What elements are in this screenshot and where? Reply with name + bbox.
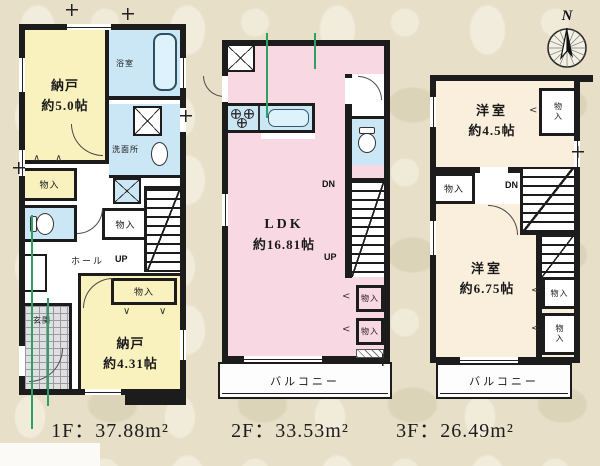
washbasin-icon bbox=[151, 142, 168, 166]
stairs-down-label: DN bbox=[505, 180, 518, 190]
wall-segment bbox=[578, 75, 593, 82]
closet: 物入 bbox=[25, 168, 77, 201]
folding-door-icon: ∧ bbox=[55, 153, 62, 164]
balcony-3f: バルコニー bbox=[436, 363, 572, 399]
floor-plan-3f: 洋室 約4.5帖 物入 < 物入 DN 洋室 約6.75帖 物入 物入 < < bbox=[430, 75, 580, 363]
washer-pan-icon bbox=[133, 106, 162, 136]
burner-icon bbox=[237, 118, 247, 128]
closet: 物入 bbox=[539, 88, 574, 136]
balcony-label: バルコニー bbox=[270, 373, 340, 389]
closet: 物入 bbox=[102, 208, 149, 240]
stair-hall bbox=[352, 74, 384, 116]
door-leaf-icon: < bbox=[529, 105, 537, 116]
entrance-door-opening bbox=[19, 346, 25, 376]
room-name: 納戸 bbox=[81, 334, 180, 354]
room-name: 納戸 bbox=[25, 76, 105, 96]
closet-label: 物入 bbox=[554, 324, 565, 344]
bathtub-icon bbox=[153, 33, 177, 91]
scan-artifact bbox=[0, 443, 100, 466]
washing-machine-pan-icon bbox=[113, 178, 141, 204]
closet-label: 物入 bbox=[39, 178, 59, 191]
window bbox=[430, 221, 436, 255]
closet-label: 物入 bbox=[134, 285, 154, 298]
staircase-1f bbox=[144, 186, 180, 272]
closet-label: 物入 bbox=[553, 102, 564, 122]
staircase-3f bbox=[520, 167, 574, 235]
compass-rose-icon bbox=[544, 25, 590, 71]
window bbox=[85, 389, 121, 395]
door-swing-icon bbox=[29, 348, 63, 382]
kitchen-sink-icon bbox=[268, 109, 309, 127]
closet: 物入 bbox=[111, 278, 177, 305]
floor-plan-2f: DN UP 物入 物入 < < LDK 約16.81帖 bbox=[222, 40, 390, 362]
room-name: 洋室 bbox=[438, 259, 536, 279]
room-bathroom: 浴室 bbox=[109, 30, 180, 100]
stairs-down-label: DN bbox=[322, 179, 335, 189]
survey-line bbox=[31, 215, 33, 429]
room-name: 洋室 bbox=[442, 101, 542, 121]
closet-label: 物入 bbox=[115, 218, 135, 231]
floor-plan-1f: 納戸 約5.0帖 浴室 洗面所 物入 ∧ ∧ 物入 ホール UP bbox=[19, 24, 186, 395]
staircase-2f bbox=[352, 178, 384, 277]
survey-line bbox=[266, 33, 268, 118]
closet: 物入 bbox=[542, 277, 574, 309]
door-opening bbox=[480, 167, 508, 173]
hall-label: ホール bbox=[71, 254, 104, 267]
room-label: 納戸 約5.0帖 bbox=[25, 76, 105, 115]
closet-label: 物入 bbox=[361, 293, 379, 304]
folding-door-icon: ∨ bbox=[159, 306, 166, 317]
window bbox=[180, 58, 186, 88]
room-size: 約16.81帖 bbox=[228, 235, 340, 255]
wall-segment bbox=[345, 74, 352, 278]
stairs-up-label: UP bbox=[115, 254, 128, 264]
compass-north-label: N bbox=[541, 8, 593, 25]
room-name: LDK bbox=[228, 214, 340, 235]
counter-edge bbox=[261, 133, 315, 139]
door-swing-icon bbox=[488, 205, 518, 235]
kitchen-counter bbox=[228, 103, 315, 133]
room-size: 約5.0帖 bbox=[25, 96, 105, 116]
survey-line bbox=[314, 33, 316, 69]
room-size: 約4.5帖 bbox=[442, 121, 542, 141]
floorplan-image: N 納戸 約5.0帖 浴室 洗面所 bbox=[0, 0, 600, 466]
stove-icon bbox=[228, 106, 260, 130]
room-storage-5jo: 納戸 約5.0帖 bbox=[25, 30, 109, 164]
compass: N bbox=[541, 8, 593, 76]
room-washroom: 洗面所 bbox=[109, 104, 180, 178]
window bbox=[67, 24, 111, 30]
toilet-icon bbox=[30, 212, 58, 238]
door-leaf-icon: < bbox=[342, 291, 350, 302]
door-swing-icon bbox=[358, 76, 382, 100]
balcony-window bbox=[460, 357, 518, 363]
room-label: LDK 約16.81帖 bbox=[228, 214, 340, 255]
refrigerator-space-icon bbox=[228, 46, 255, 72]
closet: 物入 bbox=[356, 285, 384, 312]
closet-label: 物入 bbox=[361, 326, 379, 337]
area-label-3f: 3F：26.49m² bbox=[370, 414, 540, 443]
room-name: 洗面所 bbox=[112, 144, 139, 155]
room-storage-431jo: 納戸 約4.31帖 物入 ∨ ∨ bbox=[78, 273, 180, 389]
dimension-tick bbox=[572, 146, 584, 158]
burner-icon bbox=[244, 109, 254, 119]
closet: 物入 bbox=[436, 173, 475, 204]
closet-label: 物入 bbox=[551, 288, 569, 299]
wall-segment bbox=[125, 392, 186, 405]
door-swing-icon bbox=[203, 76, 224, 97]
folding-door-icon: ∨ bbox=[123, 306, 130, 317]
window bbox=[222, 194, 228, 226]
staircase-3f-landing bbox=[542, 235, 574, 277]
window bbox=[180, 330, 186, 360]
dimension-tick bbox=[66, 4, 78, 16]
dimension-tick bbox=[122, 8, 134, 20]
area-label-1f: 1F：37.88m² bbox=[25, 414, 195, 443]
toilet-icon bbox=[355, 127, 381, 155]
room-size: 約4.31帖 bbox=[81, 354, 180, 374]
window bbox=[19, 58, 25, 92]
room-name: 浴室 bbox=[116, 58, 134, 69]
room-label: 洋室 約4.5帖 bbox=[442, 101, 542, 140]
closet: 物入 bbox=[356, 318, 384, 345]
balcony-2f: バルコニー bbox=[218, 362, 392, 399]
door-leaf-icon: < bbox=[531, 285, 539, 296]
door-leaf-icon: < bbox=[342, 324, 350, 335]
dimension-tick bbox=[13, 162, 25, 174]
folding-door-icon: ∧ bbox=[33, 153, 40, 164]
door-swing-icon bbox=[77, 208, 103, 234]
door-swing-icon bbox=[83, 278, 113, 308]
shoe-cabinet bbox=[25, 254, 47, 292]
door-leaf-icon: < bbox=[531, 323, 539, 334]
room-size: 約6.75帖 bbox=[438, 279, 536, 299]
room-label: 洋室 約6.75帖 bbox=[438, 259, 536, 298]
dimension-tick bbox=[180, 110, 192, 122]
door-swing-icon bbox=[71, 124, 103, 156]
balcony-label: バルコニー bbox=[469, 373, 539, 389]
dimension-tick bbox=[377, 354, 389, 366]
closet-label: 物入 bbox=[444, 182, 464, 195]
door-opening bbox=[222, 76, 228, 102]
door-opening bbox=[345, 78, 352, 104]
room-label: 納戸 約4.31帖 bbox=[81, 334, 180, 373]
closet: 物入 bbox=[542, 313, 574, 355]
room-toilet-2f bbox=[352, 116, 384, 165]
area-label-2f: 2F：33.53m² bbox=[205, 414, 375, 443]
window bbox=[430, 97, 436, 127]
survey-line bbox=[47, 298, 49, 406]
balcony-window bbox=[244, 356, 322, 362]
